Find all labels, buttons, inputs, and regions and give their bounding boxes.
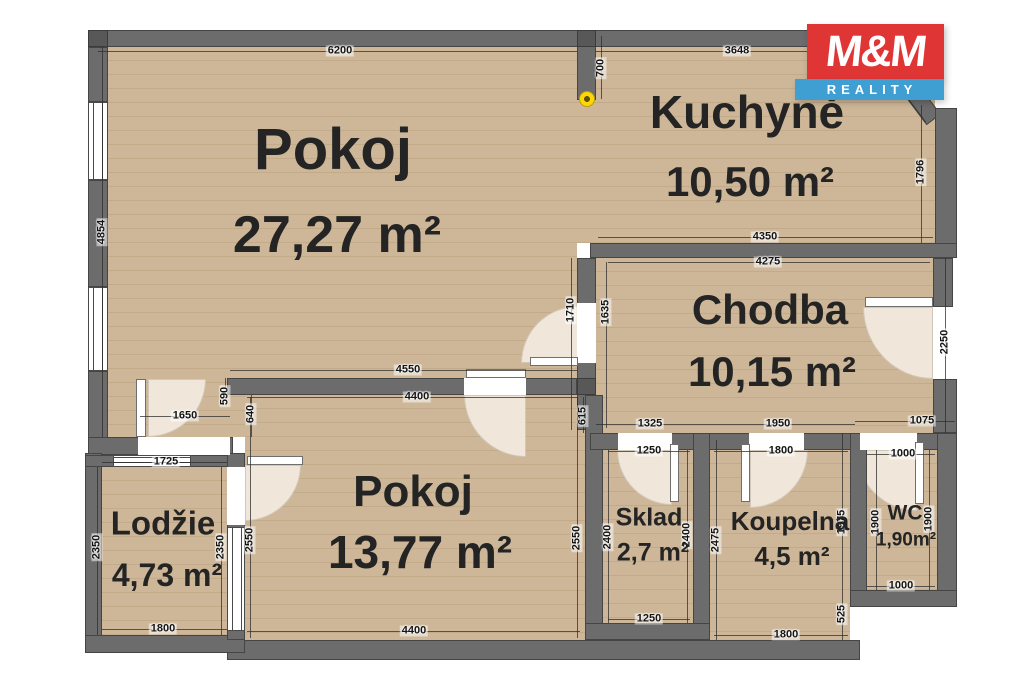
room-name-bathroom: Koupelna: [731, 508, 849, 534]
mm-reality-logo: M&M: [807, 24, 944, 80]
opening-living-loggia: [138, 437, 230, 455]
room-area-hall: 10,15 m²: [688, 351, 856, 393]
door-leaf-storage: [670, 444, 679, 502]
dim-label: 1000: [887, 581, 915, 592]
wall-wc-bottom: [850, 590, 957, 607]
window-room2-loggia: [227, 527, 245, 631]
dim-label: 1800: [149, 624, 177, 635]
dim-label: 1710: [566, 296, 577, 324]
room-name-storage: Sklad: [616, 506, 683, 531]
dim-label: 1635: [601, 298, 612, 326]
dim-label: 4854: [97, 218, 108, 246]
room-name-loggia: Lodžie: [111, 507, 216, 540]
dim-label: 590: [220, 385, 231, 407]
room-area-wc: 1,90m²: [876, 531, 936, 550]
dim-line: [571, 258, 572, 430]
dim-label: 4275: [754, 257, 782, 268]
opening-mid: [464, 378, 526, 395]
wall-storage-right: [693, 433, 710, 640]
dim-label: 1000: [889, 449, 917, 460]
floor-room2: [245, 395, 585, 640]
dim-label: 1800: [767, 446, 795, 457]
wall-bathroom-right: [850, 433, 867, 607]
dim-label: 1325: [636, 419, 664, 430]
wall-room2-right: [585, 395, 603, 640]
wall-corner-stub: [577, 30, 596, 47]
dim-label: 700: [596, 57, 607, 79]
dim-label: 2350: [92, 533, 103, 561]
dim-label: 2550: [572, 524, 583, 552]
wall-wc-right: [937, 433, 957, 607]
door-leaf-entrance: [865, 297, 933, 307]
wall-corner-mid: [577, 378, 596, 395]
room-area-living: 27,27 m²: [233, 209, 441, 261]
window-left-upper: [88, 102, 108, 180]
dim-label: 2475: [711, 526, 722, 554]
room-name-wc: WC: [888, 503, 923, 524]
floor-loggia: [102, 467, 227, 635]
dim-label: 1800: [772, 630, 800, 641]
wall-corner-topleft: [88, 30, 108, 47]
dim-label: 4350: [751, 232, 779, 243]
dim-line: [250, 397, 251, 638]
dim-label: 2550: [245, 526, 256, 554]
dim-line: [606, 262, 607, 428]
window-left-lower: [88, 287, 108, 371]
dim-label: 1950: [764, 419, 792, 430]
dim-label: 4400: [400, 626, 428, 637]
dim-label: 525: [837, 603, 848, 625]
wall-storage-bottom: [585, 623, 710, 640]
dim-label: 1725: [152, 457, 180, 468]
opening-living-hall: [577, 303, 596, 363]
room-name-hall: Chodba: [692, 289, 848, 331]
opening-loggia-room2: [227, 467, 245, 525]
dim-label: 2250: [940, 328, 951, 356]
dim-label: 1796: [916, 158, 927, 186]
wall-kitchen-right: [935, 108, 957, 245]
dim-label: 615: [578, 405, 589, 427]
wall-left-a: [88, 47, 108, 102]
dim-label: 2400: [603, 523, 614, 551]
door-leaf-loggia-room2: [247, 456, 303, 465]
dim-label: 1250: [635, 446, 663, 457]
floor-plan: 6200 700 3648 4854 1796 4350 4275 1710 1…: [0, 0, 1024, 683]
wall-loggia-bottom: [85, 635, 245, 653]
room-area-bathroom: 4,5 m²: [754, 543, 829, 569]
dim-label: 1075: [908, 416, 936, 427]
dim-label: 4400: [403, 392, 431, 403]
dim-label: 640: [246, 403, 257, 425]
logo-reality-text: REALITY: [822, 82, 918, 97]
room-name-room2: Pokoj: [353, 470, 473, 514]
logo-mm-text: M&M: [823, 27, 927, 77]
wall-hall-right-a: [933, 258, 953, 307]
dim-line: [577, 397, 578, 638]
room-area-kitchen: 10,50 m²: [666, 161, 834, 203]
dim-label: 3648: [723, 46, 751, 57]
dim-label: 4550: [394, 365, 422, 376]
dim-label: 1250: [635, 614, 663, 625]
door-leaf-bathroom: [741, 444, 750, 502]
room-area-loggia: 4,73 m²: [112, 559, 222, 591]
room-area-storage: 2,7 m²: [617, 541, 689, 566]
dim-line: [855, 421, 955, 422]
wall-top: [88, 30, 910, 47]
door-leaf-living-loggia: [136, 379, 146, 437]
room-name-living: Pokoj: [254, 121, 412, 179]
room-area-room2: 13,77 m²: [328, 529, 512, 575]
mm-reality-logo-band: REALITY: [795, 79, 944, 100]
dim-label: 1650: [171, 411, 199, 422]
wall-bottom-main: [227, 640, 860, 660]
dim-label: 6200: [326, 46, 354, 57]
point-marker-icon: [579, 91, 595, 107]
